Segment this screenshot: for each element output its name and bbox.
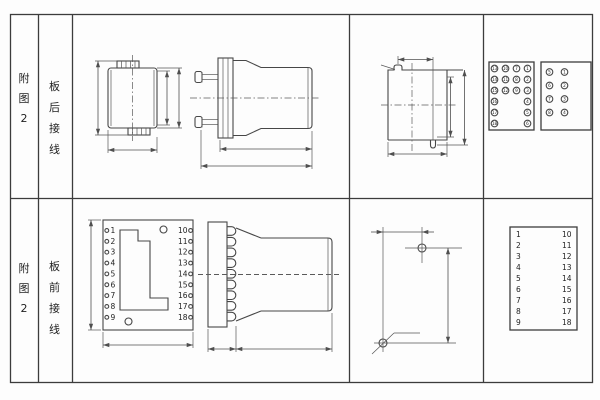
terminal-number: 7 [548, 97, 551, 102]
terminal-number: 4 [563, 110, 566, 115]
terminal-bump [227, 259, 236, 268]
wiring-label-char: 板 [49, 79, 60, 93]
row2-wiring-label: 板前接线 [49, 259, 60, 336]
terminal-dot [189, 272, 193, 276]
terminal-number: 7 [111, 291, 116, 300]
terminal-number: 2 [111, 237, 116, 246]
table-number: 12 [562, 252, 572, 261]
terminal-number: 15 [178, 280, 188, 289]
drawing-canvas: 附图2 板后接线 [0, 0, 600, 400]
terminal-dot [189, 305, 193, 309]
table-number: 16 [562, 296, 572, 305]
terminal-table-left-column: 123456789 [516, 230, 521, 327]
mounting-screw-top [195, 72, 218, 83]
front-side-view-drawing [198, 222, 340, 352]
terminal-number: 17 [178, 302, 188, 311]
rear-side-view-drawing [190, 58, 320, 169]
bottom-connector [128, 128, 150, 135]
terminal-bump [227, 312, 236, 321]
terminal-dot [105, 305, 109, 309]
table-number: 4 [516, 263, 521, 272]
terminal-bump [227, 291, 236, 300]
rear-view-drawing [95, 55, 182, 153]
terminal-dot [189, 250, 193, 254]
terminal-number: 4 [111, 259, 116, 268]
figure-label-char: 附 [19, 261, 30, 275]
wiring-label-char: 线 [49, 322, 60, 336]
table-number: 3 [516, 252, 521, 261]
front-view-right-terminals: 101112131415161718 [178, 226, 193, 322]
table-number: 10 [562, 230, 572, 239]
figure-label-char: 2 [21, 302, 28, 315]
terminal-dot [105, 261, 109, 265]
mounting-hole [125, 318, 132, 325]
terminal-number: 6 [526, 121, 529, 126]
terminal-number: 3 [526, 88, 529, 93]
wiring-label-char: 板 [49, 259, 60, 273]
terminal-number: 7 [515, 66, 518, 71]
terminal-number: 11 [178, 237, 188, 246]
terminal-number: 5 [111, 269, 116, 278]
terminal-dot [189, 261, 193, 265]
terminal-bump [227, 302, 236, 311]
terminal-bumps [227, 227, 236, 321]
figure-label-char: 图 [19, 92, 30, 105]
terminal-number: 16 [178, 291, 188, 300]
table-number: 11 [562, 241, 572, 250]
terminal-block-18: 131415161718101112789123456 [489, 62, 534, 130]
technical-drawing-sheet: 附图2 板后接线 [0, 0, 600, 400]
table-number: 15 [562, 285, 572, 294]
terminal-dot [105, 229, 109, 233]
terminal-number: 13 [178, 259, 188, 268]
wiring-label-char: 线 [49, 142, 60, 156]
terminal-dot [189, 239, 193, 243]
table-number: 18 [562, 318, 572, 327]
terminal-number: 5 [526, 110, 529, 115]
terminal-dot [189, 294, 193, 298]
terminal-number: 1 [563, 70, 566, 75]
table-number: 1 [516, 230, 521, 239]
terminal-number: 9 [111, 313, 116, 322]
figure-label-char: 附 [19, 71, 30, 85]
terminal-number: 2 [563, 83, 566, 88]
terminal-number: 3 [111, 248, 116, 257]
terminal-bump [227, 227, 236, 236]
terminal-number: 18 [492, 121, 498, 126]
front-view-drawing: 123456789 101112131415161718 [88, 220, 193, 348]
terminal-number: 14 [178, 269, 188, 278]
table-number: 14 [562, 274, 572, 283]
terminal-number: 10 [503, 66, 509, 71]
terminal-number: 15 [492, 88, 498, 93]
table-number: 13 [562, 263, 572, 272]
wiring-label-char: 接 [49, 122, 60, 135]
terminal-number: 8 [515, 77, 518, 82]
terminal-number: 3 [563, 97, 566, 102]
table-number: 2 [516, 241, 521, 250]
terminal-dot [189, 315, 193, 319]
wiring-label-char: 后 [49, 101, 60, 114]
terminal-number: 17 [492, 110, 498, 115]
terminal-bump [227, 280, 236, 289]
table-number: 9 [516, 318, 521, 327]
terminal-number: 16 [492, 99, 498, 104]
wiring-label-char: 接 [49, 302, 60, 315]
terminal-number: 6 [111, 280, 116, 289]
terminal-dot [105, 250, 109, 254]
wiring-label-char: 前 [49, 280, 60, 294]
table-number: 7 [516, 296, 521, 305]
terminal-number: 1 [111, 226, 116, 235]
terminal-number: 8 [548, 110, 551, 115]
top-connector [117, 61, 139, 68]
terminal-dot [105, 272, 109, 276]
terminal-bump [227, 270, 236, 279]
terminal-number: 6 [548, 83, 551, 88]
terminal-table-right-column: 101112131415161718 [562, 230, 572, 327]
table-number: 6 [516, 285, 521, 294]
terminal-bump [227, 248, 236, 257]
terminal-number: 12 [503, 88, 509, 93]
table-number: 5 [516, 274, 521, 283]
drill-plan-drawing [371, 227, 462, 354]
terminal-bump [227, 237, 236, 246]
terminal-block-8: 56781234 [541, 62, 591, 130]
terminal-dot [105, 283, 109, 287]
panel-cutout-drawing [381, 56, 468, 157]
mounting-hole [160, 226, 167, 233]
terminal-number: 12 [178, 248, 188, 257]
terminal-number: 11 [503, 77, 509, 82]
terminal-number: 5 [548, 70, 551, 75]
terminal-number: 1 [526, 66, 529, 71]
row1-wiring-label: 板后接线 [49, 79, 60, 156]
table-number: 8 [516, 307, 521, 316]
terminal-number: 4 [526, 99, 529, 104]
terminal-number: 14 [492, 77, 498, 82]
terminal-number: 9 [515, 88, 518, 93]
terminal-dot [189, 229, 193, 233]
row2-figure-label: 附图2 [19, 261, 30, 315]
terminal-number: 10 [178, 226, 188, 235]
table-number: 17 [562, 307, 572, 316]
terminal-number: 18 [178, 313, 188, 322]
terminal-table: 123456789 101112131415161718 [510, 227, 577, 330]
terminal-dot [189, 283, 193, 287]
front-view-left-terminals: 123456789 [105, 226, 116, 322]
terminal-dot [105, 294, 109, 298]
figure-label-char: 图 [19, 282, 30, 295]
terminal-dot [105, 239, 109, 243]
terminal-number: 13 [492, 66, 498, 71]
terminal-number: 8 [111, 302, 116, 311]
terminal-dot [105, 315, 109, 319]
terminal-number: 2 [526, 77, 529, 82]
figure-label-char: 2 [21, 112, 28, 125]
row1-figure-label: 附图2 [19, 71, 30, 125]
mounting-screw-bottom [195, 117, 218, 128]
